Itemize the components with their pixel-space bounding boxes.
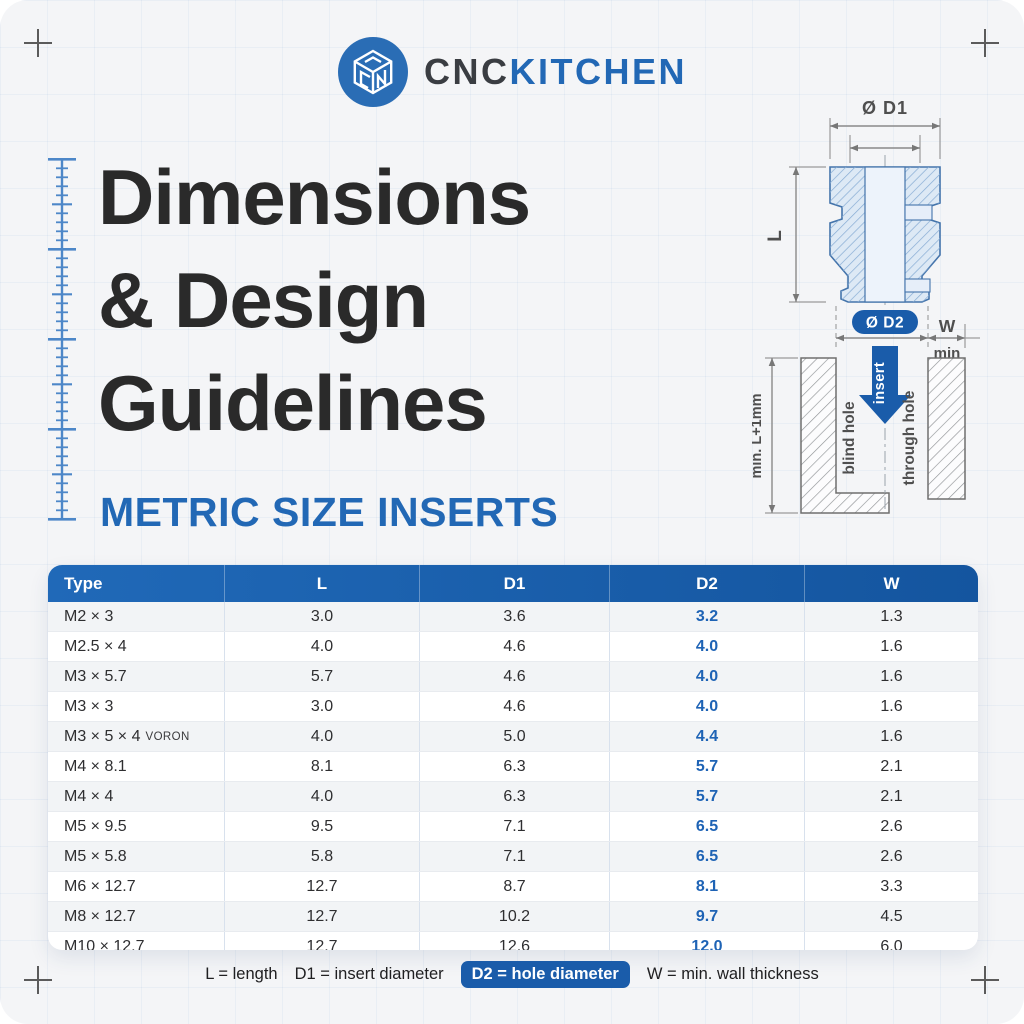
value-l: 5.8 xyxy=(225,842,420,871)
dim-d1-label: Ø D1 xyxy=(862,98,908,118)
value-w: 1.6 xyxy=(805,692,978,721)
size-table: Type L D1 D2 W M2 × 3 3.0 3.6 3.2 1.3 M2… xyxy=(48,565,978,950)
value-w: 3.3 xyxy=(805,872,978,901)
insert-type: M3 × 5 × 4 xyxy=(64,728,141,746)
insert-type: M2.5 × 4 xyxy=(64,638,127,656)
column-header-d1: D1 xyxy=(420,565,610,602)
brand-cnc-text: CNC xyxy=(424,51,510,92)
table-row: M4 × 4 4.0 6.3 5.7 2.1 xyxy=(48,781,978,811)
value-l: 12.7 xyxy=(225,902,420,931)
value-l: 4.0 xyxy=(225,632,420,661)
legend-d2-badge: D2 = hole diameter xyxy=(461,961,630,988)
value-l: 12.7 xyxy=(225,932,420,950)
value-d1: 4.6 xyxy=(420,692,610,721)
table-row: M2.5 × 4 4.0 4.6 4.0 1.6 xyxy=(48,631,978,661)
value-w: 4.5 xyxy=(805,902,978,931)
value-w: 1.3 xyxy=(805,602,978,631)
insert-type: M4 × 8.1 xyxy=(64,758,127,776)
value-d2: 6.5 xyxy=(610,842,805,871)
insert-type: M3 × 3 xyxy=(64,698,113,716)
value-d2: 4.0 xyxy=(610,662,805,691)
value-d2: 9.7 xyxy=(610,902,805,931)
value-d2: 4.4 xyxy=(610,722,805,751)
ruler-graphic xyxy=(48,158,76,522)
column-header-d2: D2 xyxy=(610,565,805,602)
value-l: 4.0 xyxy=(225,722,420,751)
title-line-1: Dimensions xyxy=(98,146,530,249)
value-w: 1.6 xyxy=(805,722,978,751)
table-row: M8 × 12.7 12.7 10.2 9.7 4.5 xyxy=(48,901,978,931)
value-d2: 8.1 xyxy=(610,872,805,901)
legend-w: W = min. wall thickness xyxy=(647,965,819,984)
value-d2: 4.0 xyxy=(610,692,805,721)
cnc-kitchen-logo-icon xyxy=(337,36,409,108)
value-w: 6.0 xyxy=(805,932,978,950)
brand-kitchen-text: KITCHEN xyxy=(510,51,688,92)
value-l: 3.0 xyxy=(225,692,420,721)
value-l: 9.5 xyxy=(225,812,420,841)
insert-type: M6 × 12.7 xyxy=(64,878,136,896)
blind-hole-label: blind hole xyxy=(841,401,858,475)
insert-type: M8 × 12.7 xyxy=(64,908,136,926)
value-w: 2.1 xyxy=(805,782,978,811)
insert-type-suffix: VORON xyxy=(146,731,190,743)
table-row: M3 × 5.7 5.7 4.6 4.0 1.6 xyxy=(48,661,978,691)
legend-l: L = length xyxy=(205,965,277,984)
column-header-w: W xyxy=(805,565,978,602)
dim-l-label: L xyxy=(765,230,786,242)
value-d1: 4.6 xyxy=(420,632,610,661)
table-header-row: Type L D1 D2 W xyxy=(48,565,978,602)
value-d1: 10.2 xyxy=(420,902,610,931)
value-d1: 6.3 xyxy=(420,752,610,781)
through-hole-wall xyxy=(928,358,965,499)
page-subtitle: METRIC SIZE INSERTS xyxy=(100,489,558,536)
title-line-2: & Design xyxy=(98,249,530,352)
value-d2: 4.0 xyxy=(610,632,805,661)
through-hole-label: through hole xyxy=(901,390,918,485)
brand-wordmark: CNCKITCHEN xyxy=(424,51,687,93)
value-d2: 5.7 xyxy=(610,752,805,781)
value-l: 5.7 xyxy=(225,662,420,691)
value-d2: 6.5 xyxy=(610,812,805,841)
insert-arrow-label: insert xyxy=(872,362,888,405)
table-row: M3 × 5 × 4VORON 4.0 5.0 4.4 1.6 xyxy=(48,721,978,751)
value-w: 2.6 xyxy=(805,812,978,841)
column-header-l: L xyxy=(225,565,420,602)
column-header-type: Type xyxy=(48,565,225,602)
value-d1: 7.1 xyxy=(420,842,610,871)
table-row: M3 × 3 3.0 4.6 4.0 1.6 xyxy=(48,691,978,721)
value-d1: 3.6 xyxy=(420,602,610,631)
insert-type: M2 × 3 xyxy=(64,608,113,626)
table-row: M5 × 9.5 9.5 7.1 6.5 2.6 xyxy=(48,811,978,841)
table-row: M6 × 12.7 12.7 8.7 8.1 3.3 xyxy=(48,871,978,901)
value-d1: 7.1 xyxy=(420,812,610,841)
value-d1: 6.3 xyxy=(420,782,610,811)
insert-type: M10 × 12.7 xyxy=(64,938,145,951)
hole-depth-label: min. L+1mm xyxy=(752,393,765,478)
insert-cross-section xyxy=(830,167,940,302)
value-w: 2.6 xyxy=(805,842,978,871)
dim-d2-label: Ø D2 xyxy=(866,315,904,332)
value-l: 8.1 xyxy=(225,752,420,781)
value-d1: 5.0 xyxy=(420,722,610,751)
value-d1: 4.6 xyxy=(420,662,610,691)
value-w: 1.6 xyxy=(805,662,978,691)
value-w: 1.6 xyxy=(805,632,978,661)
value-l: 3.0 xyxy=(225,602,420,631)
value-d1: 8.7 xyxy=(420,872,610,901)
insert-type: M4 × 4 xyxy=(64,788,113,806)
table-row: M2 × 3 3.0 3.6 3.2 1.3 xyxy=(48,602,978,631)
infographic-canvas: CNCKITCHEN Dimensions & Design Guideline… xyxy=(0,0,1024,1024)
value-d2: 12.0 xyxy=(610,932,805,950)
table-row: M4 × 8.1 8.1 6.3 5.7 2.1 xyxy=(48,751,978,781)
title-line-3: Guidelines xyxy=(98,352,530,455)
value-l: 12.7 xyxy=(225,872,420,901)
value-d2: 3.2 xyxy=(610,602,805,631)
value-d1: 12.6 xyxy=(420,932,610,950)
table-row: M5 × 5.8 5.8 7.1 6.5 2.6 xyxy=(48,841,978,871)
insert-technical-drawing: Ø D1 L Ø D2 W min xyxy=(752,95,1012,540)
insert-type: M5 × 9.5 xyxy=(64,818,127,836)
value-d2: 5.7 xyxy=(610,782,805,811)
dim-w-label: W xyxy=(939,316,956,336)
table-row: M10 × 12.7 12.7 12.6 12.0 6.0 xyxy=(48,931,978,950)
legend-d1: D1 = insert diameter xyxy=(295,965,444,984)
page-title: Dimensions & Design Guidelines xyxy=(98,146,530,455)
legend-bar: L = length D1 = insert diameter D2 = hol… xyxy=(0,961,1024,988)
insert-type: M5 × 5.8 xyxy=(64,848,127,866)
value-w: 2.1 xyxy=(805,752,978,781)
table-body: M2 × 3 3.0 3.6 3.2 1.3 M2.5 × 4 4.0 4.6 … xyxy=(48,602,978,950)
value-l: 4.0 xyxy=(225,782,420,811)
insert-type: M3 × 5.7 xyxy=(64,668,127,686)
